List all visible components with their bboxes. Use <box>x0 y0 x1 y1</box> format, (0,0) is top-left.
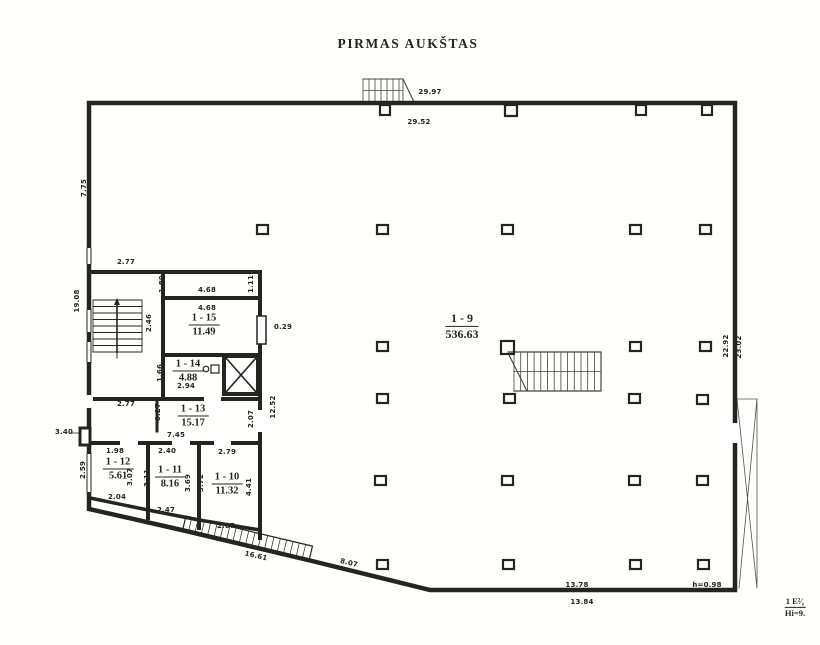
dimension-label: 12.52 <box>269 395 277 418</box>
dimension-label: 4.68 <box>198 304 216 312</box>
dimension-label: 13.84 <box>570 598 593 606</box>
hall-staircase <box>508 352 601 391</box>
dimension-label: 2.94 <box>177 382 195 390</box>
dimension-label: 3.07 <box>126 468 134 486</box>
room-label-1-10: 1 - 10 11.32 <box>212 471 243 496</box>
room-area: 11.49 <box>189 326 220 338</box>
dimension-label: 2.77 <box>117 258 135 266</box>
dimension-label: 2.07 <box>247 410 255 428</box>
door-symbol <box>203 365 219 373</box>
wall-stub <box>80 428 90 445</box>
corner-mark: 1 E²⁄₁ Hi=9. <box>785 596 806 618</box>
stairwell-left <box>93 298 142 358</box>
room-area: 8.16 <box>155 478 185 490</box>
dimension-label: 0.29 <box>274 323 292 331</box>
dimension-label: 2.87 <box>217 522 235 530</box>
dimension-label: 7.75 <box>80 179 88 197</box>
dimension-label: 1.89 <box>158 275 166 293</box>
building-index: 1 E²⁄₁ <box>785 596 806 608</box>
dimension-label: 22.92 <box>722 334 730 357</box>
dimension-label: 2.77 <box>117 400 135 408</box>
scan-page: PIRMAS AUKŠTAS <box>0 0 820 645</box>
building-height: Hi=9. <box>785 608 806 619</box>
room-number: 1 - 10 <box>212 471 243 484</box>
dimension-label: 2.04 <box>108 493 126 501</box>
room-label-1-14: 1 - 14 4.88 <box>173 358 204 383</box>
dimension-label: 29.97 <box>418 88 441 96</box>
dimension-label: 3.11 <box>143 469 151 487</box>
dimension-label: 2.46 <box>145 314 153 332</box>
dimension-label: 2.40 <box>158 447 176 455</box>
room-number: 1 - 9 <box>446 312 479 327</box>
dimension-label: 2.47 <box>157 506 175 514</box>
dimension-label: 29.52 <box>407 118 430 126</box>
dimension-label: 1.11 <box>247 275 255 293</box>
dimension-label: 3.69 <box>184 474 192 492</box>
floor-plan-drawing <box>0 0 820 645</box>
dimension-label: 1.98 <box>106 447 124 455</box>
room-area: 536.63 <box>446 327 479 341</box>
dimension-label: 2.79 <box>218 448 236 456</box>
dimension-label: 0.27 <box>154 403 162 421</box>
dimension-label: 1.66 <box>156 364 164 382</box>
room-number: 1 - 15 <box>189 312 220 325</box>
dimension-label: 3.72 <box>197 474 205 492</box>
wall-jog <box>257 316 266 344</box>
room-label-1-13: 1 - 13 15.17 <box>178 403 209 428</box>
room-number: 1 - 13 <box>178 403 209 416</box>
ramp-right <box>737 399 757 588</box>
entrance-stairs-top <box>363 79 414 102</box>
dimension-label: 23.02 <box>735 335 743 358</box>
room-label-1-11: 1 - 11 8.16 <box>155 464 185 489</box>
dimension-label: 7.45 <box>167 431 185 439</box>
room-label-1-9: 1 - 9 536.63 <box>446 312 479 340</box>
room-area: 15.17 <box>178 417 209 429</box>
elevator-shaft <box>224 356 258 394</box>
dimension-label: 4.41 <box>245 478 253 496</box>
dimension-label: 13.78 <box>565 581 588 589</box>
room-area: 11.32 <box>212 485 243 497</box>
dimension-label: 4.68 <box>198 286 216 294</box>
dimension-label: 19.08 <box>73 289 81 312</box>
column-grid <box>257 105 712 569</box>
room-number: 1 - 11 <box>155 464 185 477</box>
room-number: 1 - 14 <box>173 358 204 371</box>
dimension-label: h=0.98 <box>692 581 721 589</box>
room-label-1-15: 1 - 15 11.49 <box>189 312 220 337</box>
dimension-label: 3.40 <box>55 428 73 436</box>
dimension-label: 2.59 <box>79 461 87 479</box>
